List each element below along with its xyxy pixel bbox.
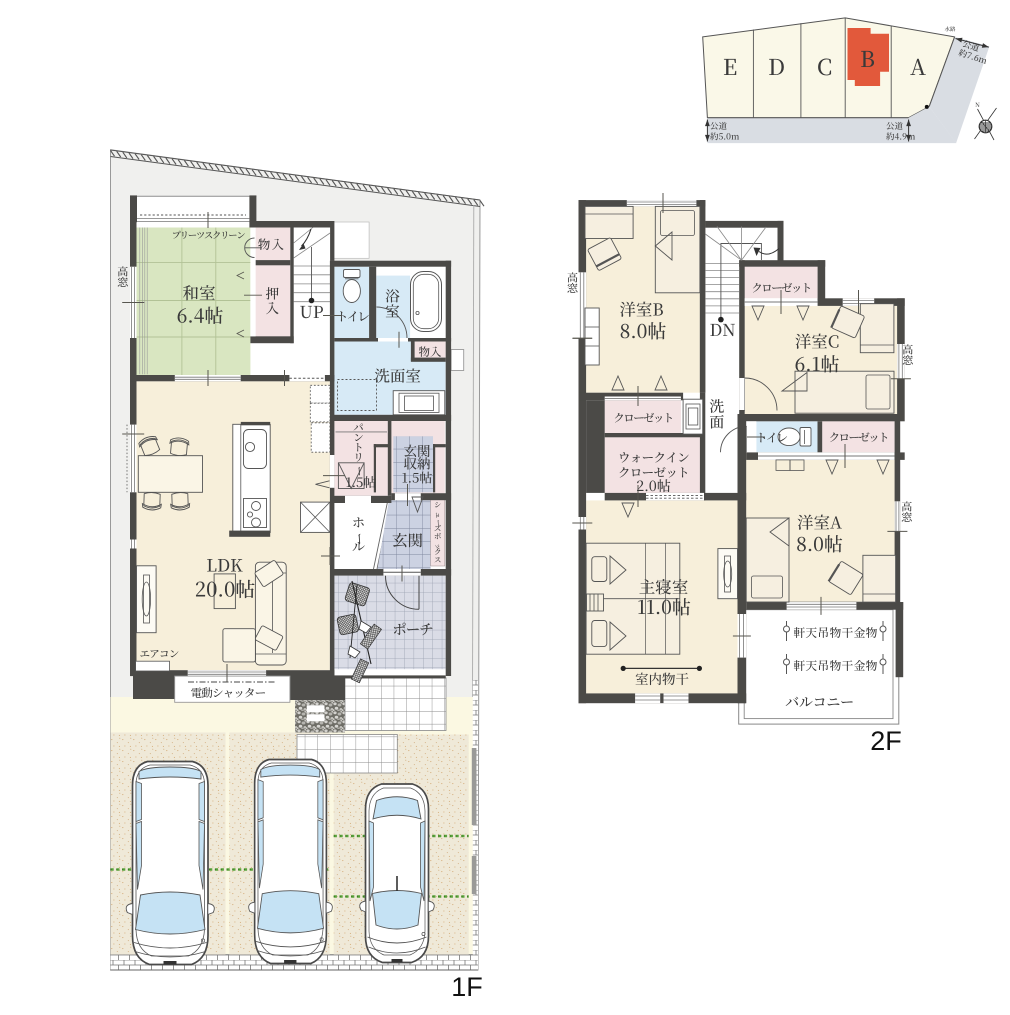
svg-text:1F: 1F bbox=[451, 972, 483, 1002]
svg-text:2F: 2F bbox=[870, 726, 902, 756]
